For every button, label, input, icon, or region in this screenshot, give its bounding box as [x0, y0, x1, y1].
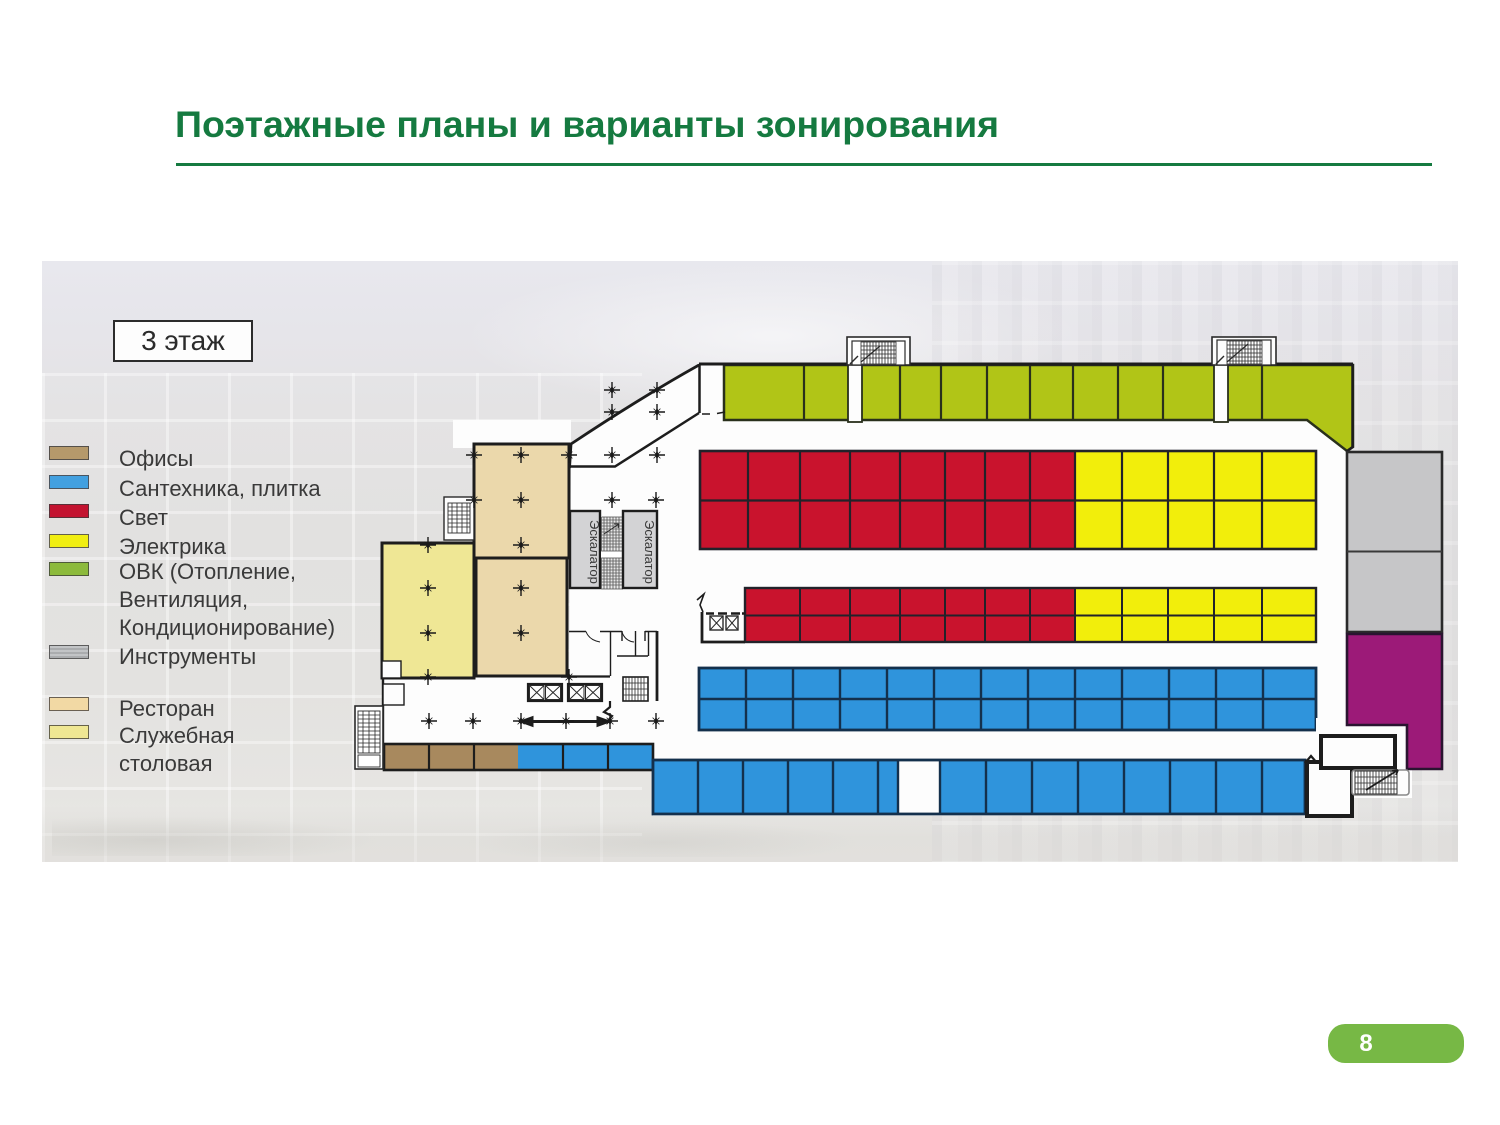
- svg-text:Эскалатор: Эскалатор: [587, 520, 602, 584]
- svg-text:Эскалатор: Эскалатор: [642, 520, 657, 584]
